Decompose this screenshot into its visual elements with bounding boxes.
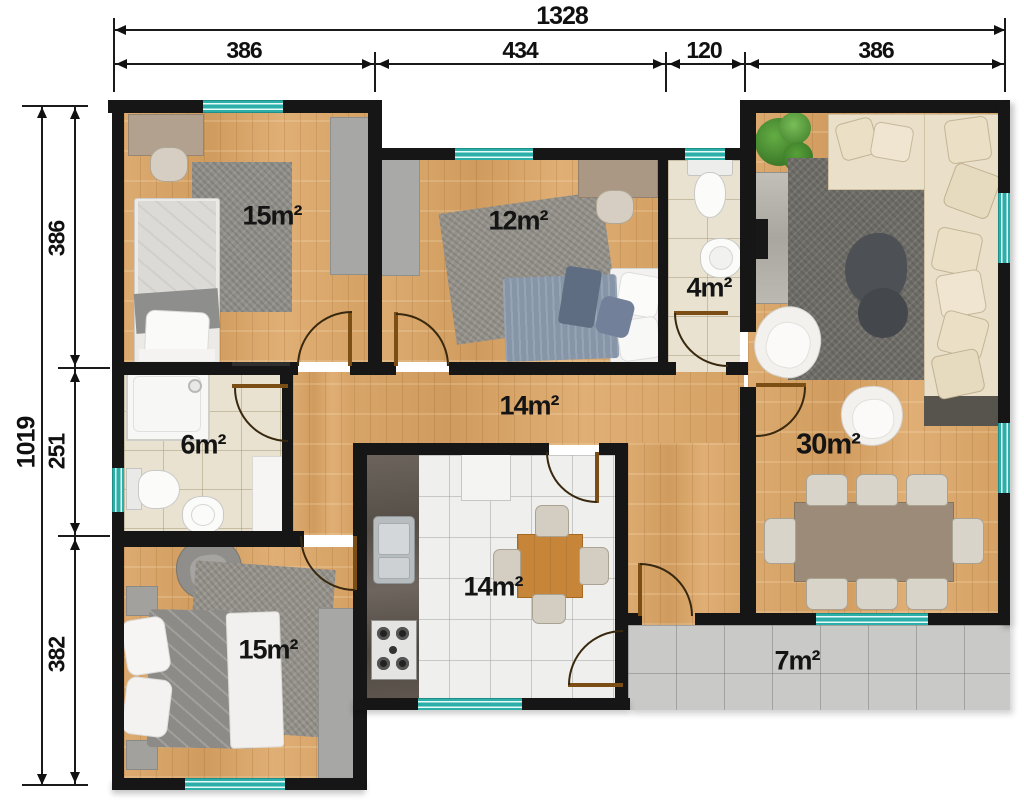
dimension-arrow	[70, 523, 80, 534]
wall	[112, 100, 124, 790]
dimension-label-left-3: 382	[44, 615, 71, 695]
plant-foliage	[779, 112, 811, 144]
burner	[396, 657, 409, 670]
dimension-arrow	[37, 107, 47, 118]
dining-chair	[806, 474, 848, 506]
room-label-terrace: 7m²	[774, 646, 819, 677]
dimension-label-left-1: 386	[44, 199, 71, 279]
dimension-arrow	[70, 108, 80, 119]
room-label-bathroom: 6m²	[180, 430, 225, 461]
dimension-label-left-2: 251	[44, 412, 71, 492]
coffee-table	[858, 288, 908, 338]
wall	[658, 148, 668, 375]
bathroom-cabinet	[252, 456, 286, 532]
dimension-label-left-total: 1019	[13, 388, 42, 498]
room-label-bedroom-top-left: 15m²	[242, 201, 301, 232]
blanket	[226, 611, 285, 749]
wall	[998, 100, 1010, 625]
bidet-basin	[191, 504, 215, 526]
dimension-label-top-1: 386	[194, 37, 294, 64]
kitchen-chair	[535, 505, 569, 537]
extension-line	[374, 52, 376, 92]
dimension-arrow	[70, 371, 80, 382]
sink-basin	[378, 523, 410, 555]
bed	[122, 610, 284, 750]
hallway-alcove-floor	[293, 372, 353, 535]
dimension-arrow	[70, 355, 80, 366]
dimension-label-top-4: 386	[826, 37, 926, 64]
dimension-arrow	[748, 59, 759, 69]
wall	[726, 362, 748, 375]
dimension-label-top-2: 434	[470, 37, 570, 64]
dimension-label-top-total: 1328	[482, 2, 642, 31]
dimension-arrow	[116, 59, 127, 69]
pillow	[943, 115, 993, 165]
dimension-arrow	[115, 25, 126, 35]
dining-chair	[764, 518, 796, 564]
extension-line	[744, 52, 746, 92]
pillow	[869, 121, 915, 163]
wall	[740, 160, 756, 332]
pillow	[121, 675, 174, 738]
wall	[658, 362, 676, 375]
room-label-bedroom-middle: 12m²	[488, 206, 547, 237]
wall	[695, 613, 746, 625]
window	[685, 148, 725, 160]
room-label-living-room: 30m²	[796, 429, 860, 462]
burner	[396, 627, 409, 640]
kitchen-sink	[373, 516, 415, 584]
dimension-arrow	[653, 59, 664, 69]
dining-chair	[906, 578, 948, 610]
wall	[353, 443, 367, 790]
dining-chair	[906, 474, 948, 506]
desk-chair	[150, 147, 188, 182]
wardrobe	[379, 158, 420, 276]
wardrobe	[318, 608, 354, 782]
dining-chair	[806, 578, 848, 610]
kitchen-table	[517, 534, 583, 598]
room-label-hallway: 14m²	[499, 391, 558, 422]
toilet-bowl	[694, 172, 726, 218]
desk-chair	[596, 190, 634, 224]
window	[203, 100, 283, 113]
wall	[368, 100, 382, 362]
dining-chair	[952, 518, 984, 564]
room-label-bedroom-bottom-left: 15m²	[238, 635, 297, 666]
sink-basin	[709, 246, 733, 270]
burner-knob	[389, 646, 397, 654]
sink-basin	[378, 557, 410, 579]
sheet	[139, 349, 215, 361]
room-label-kitchen: 14m²	[463, 572, 522, 603]
dimension-line-left-segments	[74, 106, 76, 786]
dimension-arrow	[378, 59, 389, 69]
kitchen-chair	[532, 594, 566, 624]
extension-line	[58, 535, 110, 537]
window	[998, 423, 1010, 493]
dimension-arrow	[70, 539, 80, 550]
bed	[504, 268, 664, 364]
window	[418, 698, 522, 710]
wall	[112, 531, 304, 547]
window	[998, 193, 1010, 263]
dimension-arrow	[994, 25, 1005, 35]
extension-line	[22, 784, 88, 786]
extension-line	[58, 367, 110, 369]
floor-plan: 15m² 12m² 4m² 30m² 6m² 14m² 14m² 15m² 7m…	[0, 0, 1024, 804]
stove	[371, 620, 417, 680]
wall	[740, 100, 1010, 113]
window	[185, 778, 285, 790]
wall	[740, 100, 756, 160]
wall	[350, 362, 396, 375]
sofa-base	[924, 396, 998, 426]
window	[112, 468, 124, 512]
dimension-arrow	[992, 59, 1003, 69]
wall	[449, 362, 658, 375]
dimension-label-top-3: 120	[664, 37, 744, 64]
dimension-arrow	[362, 59, 373, 69]
dining-chair	[856, 578, 898, 610]
wall	[740, 387, 756, 613]
dining-chair	[856, 474, 898, 506]
fridge	[461, 453, 511, 501]
bed	[134, 198, 220, 364]
extension-line	[22, 105, 88, 107]
room-label-bathroom-small: 4m²	[686, 273, 731, 304]
tv	[756, 219, 768, 259]
wall-lintel	[232, 362, 290, 366]
window	[816, 613, 928, 625]
duvet	[138, 201, 216, 297]
wall	[353, 443, 549, 455]
kitchen-chair	[579, 547, 609, 585]
dining-table	[794, 502, 954, 582]
armchair-cushion	[761, 317, 816, 373]
wardrobe	[330, 117, 372, 275]
dimension-arrow	[37, 774, 47, 785]
bidet	[182, 496, 224, 534]
pillow	[120, 615, 172, 677]
window	[455, 148, 533, 160]
dimension-arrow	[70, 772, 80, 783]
burner	[377, 627, 390, 640]
toilet-bowl	[138, 470, 180, 509]
shower-drain	[188, 379, 202, 393]
burner	[377, 657, 390, 670]
